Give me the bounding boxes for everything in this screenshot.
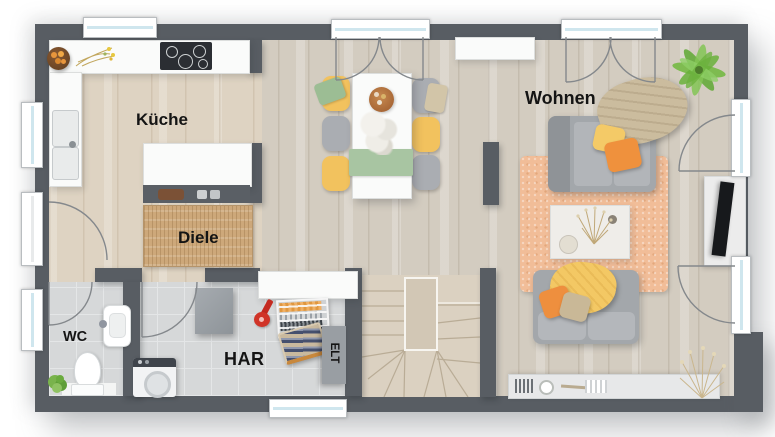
french-door-dining [331, 19, 430, 39]
washbasin-icon [103, 305, 131, 347]
wall-kitchen-stub-top [248, 40, 262, 73]
french-door-living [561, 19, 662, 39]
staircase-icon [362, 275, 480, 397]
bag-icon [158, 189, 184, 200]
terrace-door-lower [731, 256, 751, 334]
wardrobe-shelf [143, 185, 250, 203]
toilet-icon [74, 352, 101, 388]
room-label-wohnen: Wohnen [525, 88, 596, 109]
window-kitchen-left [21, 102, 43, 168]
centerpiece-bowl-icon [369, 87, 394, 112]
palm-plant-icon [668, 38, 730, 102]
window-har-bottom [269, 399, 347, 418]
window-kitchen-top [83, 17, 157, 38]
sideboard-top-wall [455, 37, 535, 60]
dining-chair [322, 116, 350, 151]
room-label-elt: ELT [328, 341, 340, 365]
dried-plant-icon-2 [676, 346, 728, 400]
window-wc-left [21, 289, 43, 351]
shoes-icon [197, 190, 207, 199]
floor-plan: Küche Diele Wohnen WC HAR ELT [0, 0, 775, 437]
room-label-kueche: Küche [136, 110, 188, 130]
dining-chair [412, 117, 440, 152]
entry-door [21, 192, 43, 266]
vase-icon [539, 380, 554, 395]
wall-divider-wc-har [95, 268, 142, 282]
books-icon [515, 379, 535, 393]
dining-chair [412, 155, 440, 190]
room-label-diele: Diele [178, 228, 219, 248]
staircase [362, 275, 480, 397]
dried-plant-icon [574, 206, 614, 246]
wall-divider-hall [205, 268, 260, 282]
faucet-icon [69, 141, 76, 148]
room-label-har: HAR [224, 349, 265, 370]
room-label-wc: WC [63, 329, 87, 345]
vacuum-icon [252, 299, 278, 329]
heat-pump-unit [195, 288, 233, 334]
fruit-bowl-icon [47, 47, 70, 70]
shoes-icon-2 [210, 190, 220, 199]
wall-dining-stub-right [483, 142, 499, 205]
toilet-tank [71, 384, 104, 396]
books-icon-2 [585, 380, 607, 393]
kitchen-sink-icon-2 [52, 147, 79, 180]
washbasin-faucet-icon [99, 320, 107, 328]
wall-stair-right [480, 268, 496, 397]
cooktop-icon [160, 42, 212, 70]
dining-chair [322, 156, 350, 191]
washing-machine-icon [133, 358, 176, 397]
wc-plant-icon [46, 372, 70, 396]
har-counter [258, 271, 358, 299]
flower-bouquet-icon [359, 111, 399, 155]
terrace-door-upper [731, 99, 751, 177]
wardrobe [143, 143, 252, 187]
flower-decor-icon [72, 42, 116, 70]
wall-corner-block [734, 332, 763, 412]
